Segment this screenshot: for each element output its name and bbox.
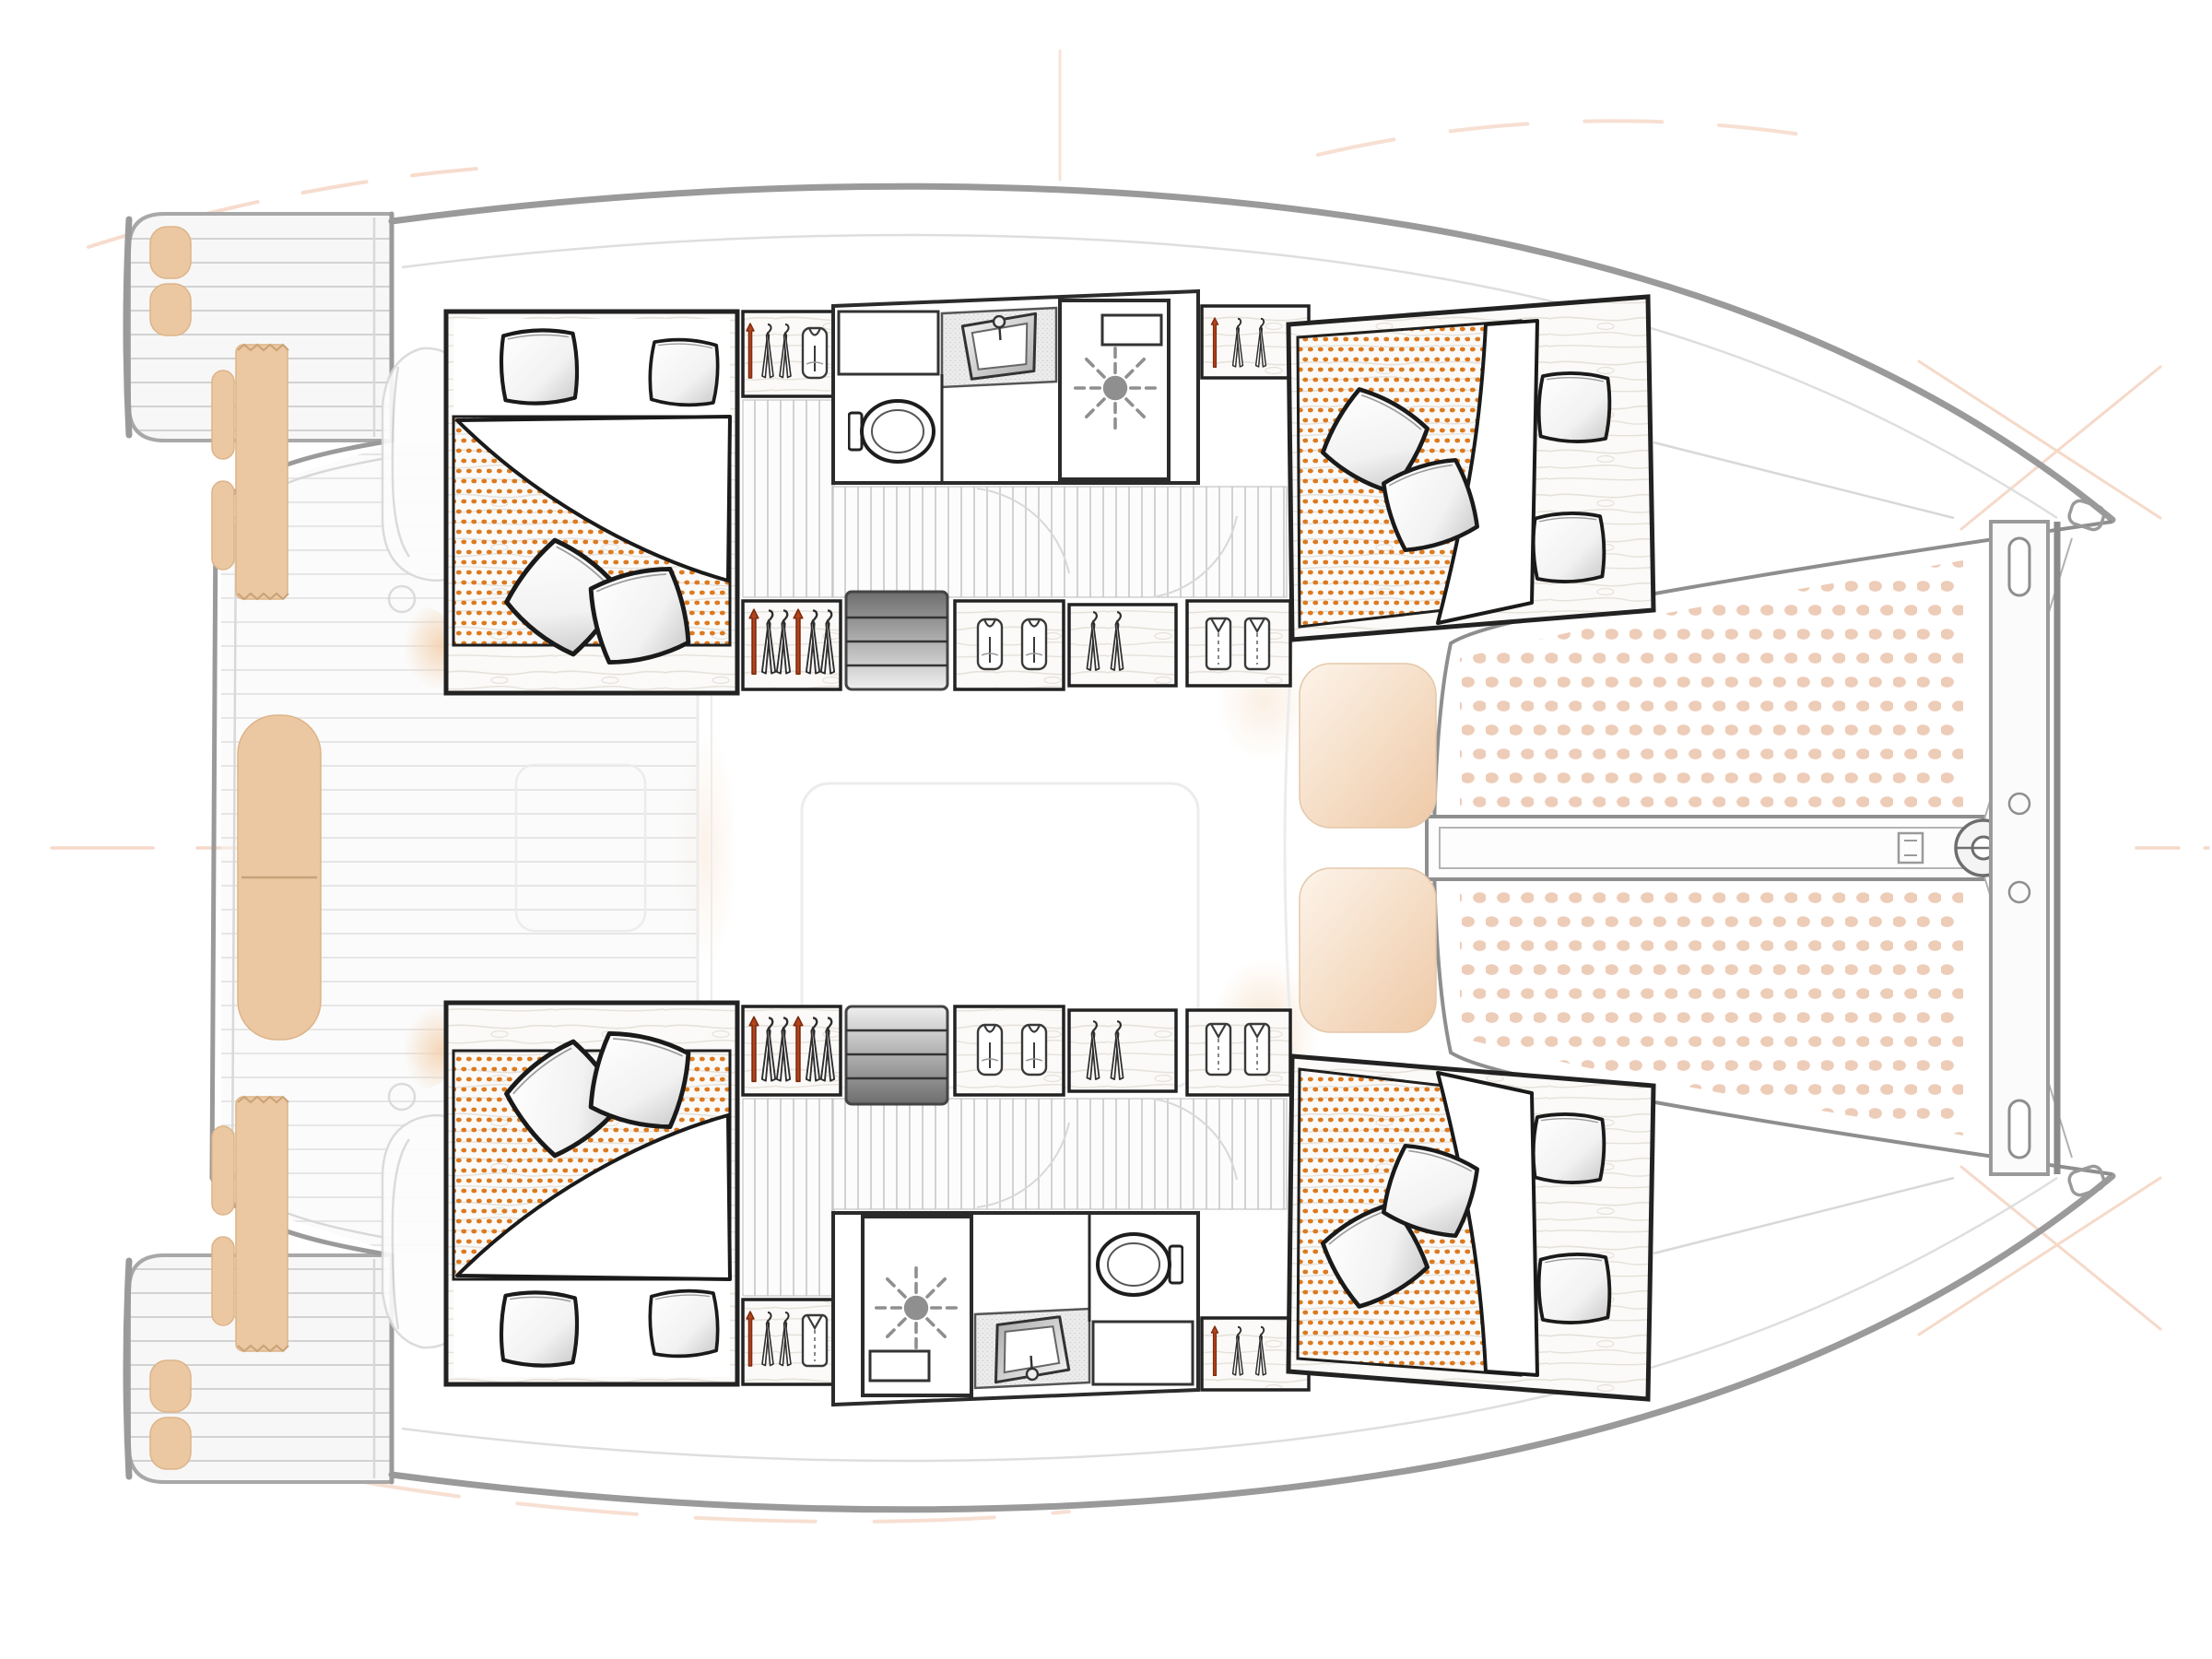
central-beam (1427, 817, 1983, 879)
ref-cross-bow-bottom (1919, 1167, 2160, 1335)
bed-pillow (500, 1291, 579, 1367)
companionway-stairs-top (846, 592, 947, 689)
sink-icon (992, 1316, 1069, 1382)
shirt-cabinet (1187, 601, 1290, 686)
hanger-cabinet-b (1069, 1010, 1176, 1091)
corridor (743, 1099, 834, 1296)
step-cushion (212, 481, 234, 570)
transom-cushion (150, 1360, 191, 1412)
step-cushion (212, 1237, 234, 1325)
shirt-icon (803, 1315, 827, 1366)
bed-pillow (649, 338, 720, 406)
corridor (743, 400, 834, 597)
transom-cushion (150, 227, 191, 278)
step-cushion (212, 371, 234, 459)
life-jacket-icon (803, 328, 827, 378)
bed-pillow (1532, 512, 1605, 583)
life-jacket-icon (978, 619, 1002, 669)
transom-cushion (150, 284, 191, 335)
bed-pillow (1537, 372, 1610, 443)
ref-dash-top (1318, 121, 1825, 155)
bed-pillow (1532, 1113, 1605, 1184)
step-cushion (212, 1126, 234, 1215)
bow-locker-line (1653, 442, 1954, 518)
foredeck-pad-bottom (1300, 868, 1436, 1032)
corridor-bottom-main (833, 1099, 1287, 1209)
catamaran-floor-plan (0, 0, 2212, 1659)
life-jacket-icon (978, 1025, 1002, 1075)
forward-crossbeam (1991, 522, 2057, 1174)
bed-pillow (500, 329, 579, 405)
cockpit-bench-bottom (236, 1097, 288, 1351)
shower-shelf (1102, 315, 1161, 345)
bow-locker-line (1653, 1178, 1954, 1253)
life-jacket-icon (1022, 1025, 1046, 1075)
shirt-icon (1245, 1024, 1269, 1075)
transom-cushion (150, 1418, 191, 1469)
shirt-icon (1206, 1024, 1230, 1075)
shirt-icon (1245, 618, 1269, 669)
corridor-top-main (833, 487, 1287, 597)
shirt-icon (1206, 618, 1230, 669)
ref-cross-bow-top (1919, 361, 2160, 529)
sink-icon (962, 313, 1040, 379)
bed-pillow (649, 1289, 720, 1358)
foredeck-pad-top (1300, 664, 1436, 828)
hanger-cabinet-b (1069, 605, 1176, 686)
vanity-cabinet (1093, 1322, 1193, 1384)
life-jacket-icon (1022, 619, 1046, 669)
life-jacket-cabinet (955, 601, 1064, 689)
bed-pillow (1537, 1253, 1610, 1324)
vanity-cabinet (839, 312, 938, 374)
shower-shelf (870, 1351, 929, 1381)
cockpit-bench-top (236, 345, 288, 599)
companionway-stairs-bottom (846, 1006, 947, 1104)
life-jacket-cabinet (955, 1006, 1064, 1095)
shirt-cabinet (1187, 1010, 1290, 1095)
cockpit-lounge-pad (238, 715, 321, 1040)
